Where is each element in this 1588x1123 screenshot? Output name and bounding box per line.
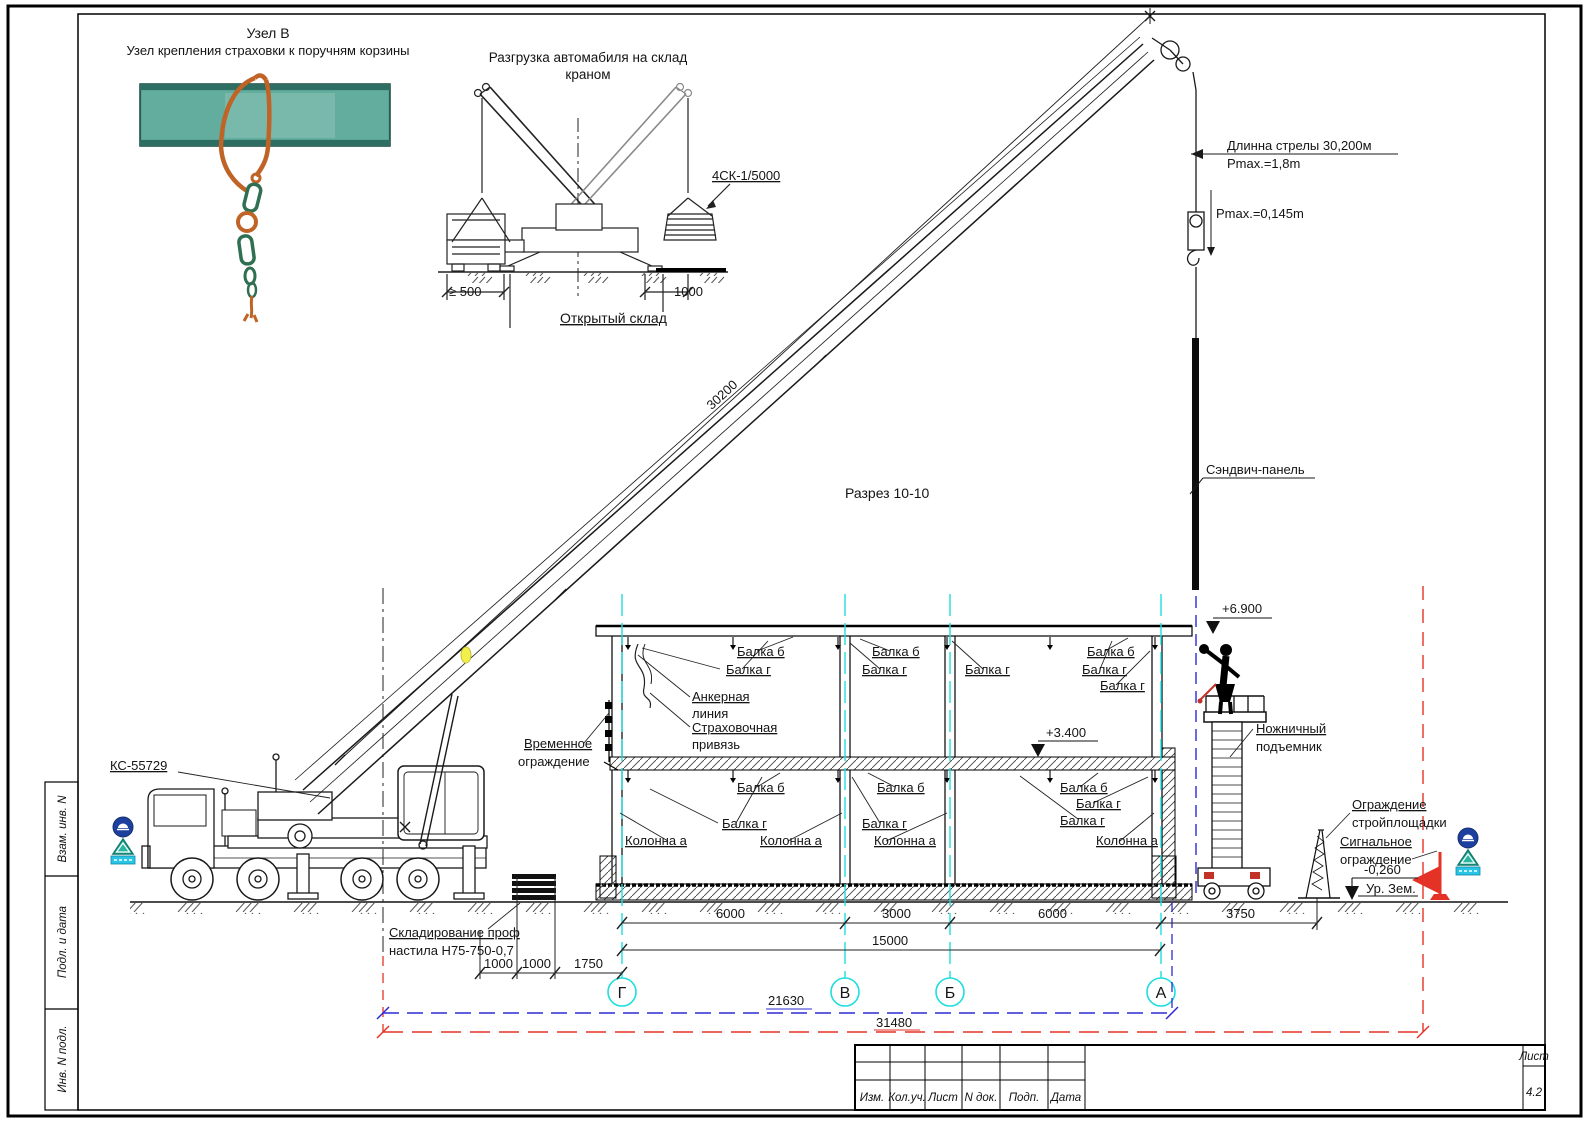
site-fence-label-1: Ограждение: [1352, 797, 1427, 812]
dim-1000-b: 1000: [522, 956, 551, 971]
beam-g-lower-3: Балка г: [1076, 796, 1121, 811]
beam-g-upper-4: Балка г: [1082, 662, 1127, 677]
boom-length-note: Длинна стрелы 30,200м: [1227, 138, 1372, 153]
beam-g-lower-4: Балка г: [1060, 813, 1105, 828]
dim-21630: 21630: [768, 993, 804, 1008]
scissor-lift-label-1: Ножничный: [1256, 721, 1326, 736]
node-b-title-2: Узел крепления страховки к поручням корз…: [127, 43, 410, 58]
unload-title-2: краном: [565, 67, 610, 82]
stamp-cell-2: Подл. и дата: [57, 906, 69, 978]
scissor-lift-label-2: подъемник: [1256, 739, 1322, 754]
axis-letter-v: В: [840, 985, 851, 1002]
drawing-canvas: Взам. инв. N Подл. и дата Инв. N подл. И…: [0, 0, 1588, 1123]
signal-fence-label-2: ограждение: [1340, 852, 1412, 867]
dim-offset-500: ≥ 500: [449, 284, 481, 299]
level-roof-mark: +6.900: [1222, 601, 1262, 616]
sandwich-panel: [1192, 338, 1199, 590]
temp-fence-label-1: Временное: [524, 736, 592, 751]
sling-type-label: 4СК-1/5000: [712, 168, 780, 183]
dim-6000-a: 6000: [716, 906, 745, 921]
titleblock-col-koluch: Кол.уч.: [888, 1092, 926, 1104]
beam-g-upper-5: Балка г: [1100, 678, 1145, 693]
dim-1750: 1750: [574, 956, 603, 971]
titleblock-col-ndok: N док.: [965, 1092, 998, 1104]
ground-line: [130, 902, 1508, 914]
crane-model-label: КС-55729: [110, 758, 167, 773]
harness-label-2: привязь: [692, 737, 740, 752]
beam-b-upper-3: Балка б: [1087, 644, 1135, 659]
beam-g-upper-1: Балка г: [726, 662, 771, 677]
column-a-label-3: Колонна а: [874, 833, 937, 848]
beam-g-lower-2: Балка г: [862, 816, 907, 831]
stamp-cell-3: Инв. N подл.: [57, 1025, 69, 1092]
beam-g-upper-2: Балка г: [862, 662, 907, 677]
unload-title-1: Разгрузка автомабиля на склад: [489, 50, 688, 65]
column-a-label-2: Колонна а: [760, 833, 823, 848]
drawing-sheet: Взам. инв. N Подл. и дата Инв. N подл. И…: [0, 0, 1588, 1123]
open-storage-label: Открытый склад: [560, 310, 667, 326]
temp-fence-label-2: ограждение: [518, 754, 590, 769]
anchor-line-label-2: линия: [692, 706, 728, 721]
column-a-label-4: Колонна а: [1096, 833, 1159, 848]
beam-g-upper-3: Балка г: [965, 662, 1010, 677]
axis-letter-g: Г: [618, 985, 627, 1002]
titleblock-col-data: Дата: [1049, 1092, 1081, 1104]
sheet-number-label: Лист: [1518, 1051, 1549, 1063]
beam-b-lower-3: Балка б: [1060, 780, 1108, 795]
signal-fence-label-1: Сигнальное: [1340, 834, 1412, 849]
harness-label-1: Страховочная: [692, 720, 777, 735]
site-fence-label-2: стройплощадки: [1352, 815, 1447, 830]
dim-3750: 3750: [1226, 906, 1255, 921]
sandwich-panel-label: Сэндвич-панель: [1206, 462, 1305, 477]
beam-b-lower-1: Балка б: [737, 780, 785, 795]
titleblock-col-list: Лист: [927, 1092, 958, 1104]
section-view-title: Разрез 10-10: [845, 485, 930, 501]
dim-31480: 31480: [876, 1015, 912, 1030]
anchor-line-label-1: Анкерная: [692, 689, 750, 704]
titleblock-col-podp: Подп.: [1009, 1092, 1040, 1104]
boom-pmax-note: Pmax.=1,8m: [1227, 156, 1300, 171]
dim-1000-a: 1000: [484, 956, 513, 971]
stamp-cell-1: Взам. инв. N: [57, 795, 69, 863]
dim-storage-1000: 1000: [674, 284, 703, 299]
paper-background: [0, 0, 1588, 1123]
decking-label-1: Складирование проф: [389, 925, 520, 940]
dim-15000: 15000: [872, 933, 908, 948]
beam-b-lower-2: Балка б: [877, 780, 925, 795]
level-ground-name: Ур. Зем.: [1366, 881, 1416, 896]
titleblock-col-izm: Изм.: [860, 1092, 885, 1104]
sheet-number-value: 4.2: [1526, 1087, 1543, 1099]
node-b-title-1: Узел В: [246, 25, 289, 41]
axis-letter-b: Б: [945, 985, 956, 1002]
hook-pmax-note: Pmax.=0,145m: [1216, 206, 1304, 221]
level-floor-mark: +3.400: [1046, 725, 1086, 740]
dim-3000: 3000: [882, 906, 911, 921]
beam-g-lower-1: Балка г: [722, 816, 767, 831]
beam-b-upper-2: Балка б: [872, 644, 920, 659]
beam-b-upper-1: Балка б: [737, 644, 785, 659]
dim-6000-b: 6000: [1038, 906, 1067, 921]
column-a-label-1: Колонна а: [625, 833, 688, 848]
axis-letter-a: А: [1156, 985, 1167, 1002]
